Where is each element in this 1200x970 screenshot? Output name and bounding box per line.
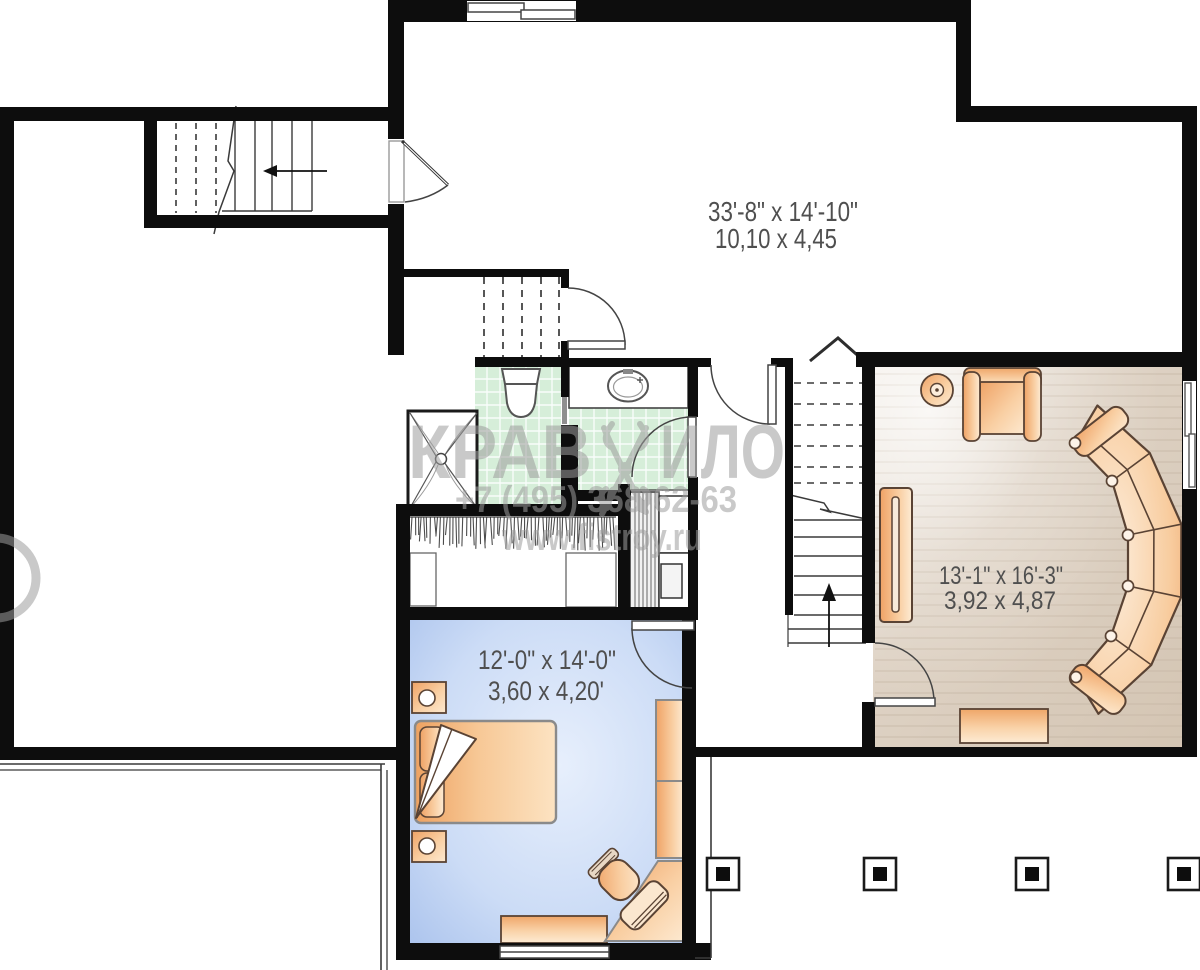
svg-text:12'-0" x 14'-0": 12'-0" x 14'-0"	[478, 645, 616, 675]
svg-text:3,60 x 4,20': 3,60 x 4,20'	[488, 676, 604, 706]
svg-text:+7 (495) 368-62-63: +7 (495) 368-62-63	[455, 479, 737, 520]
svg-text:13'-1" x 16'-3": 13'-1" x 16'-3"	[939, 562, 1063, 590]
svg-text:3,92 x 4,87: 3,92 x 4,87	[944, 587, 1056, 615]
svg-text:www.fistroy.ru: www.fistroy.ru	[501, 517, 702, 559]
svg-text:10,10 x 4,45: 10,10 x 4,45	[715, 223, 837, 254]
